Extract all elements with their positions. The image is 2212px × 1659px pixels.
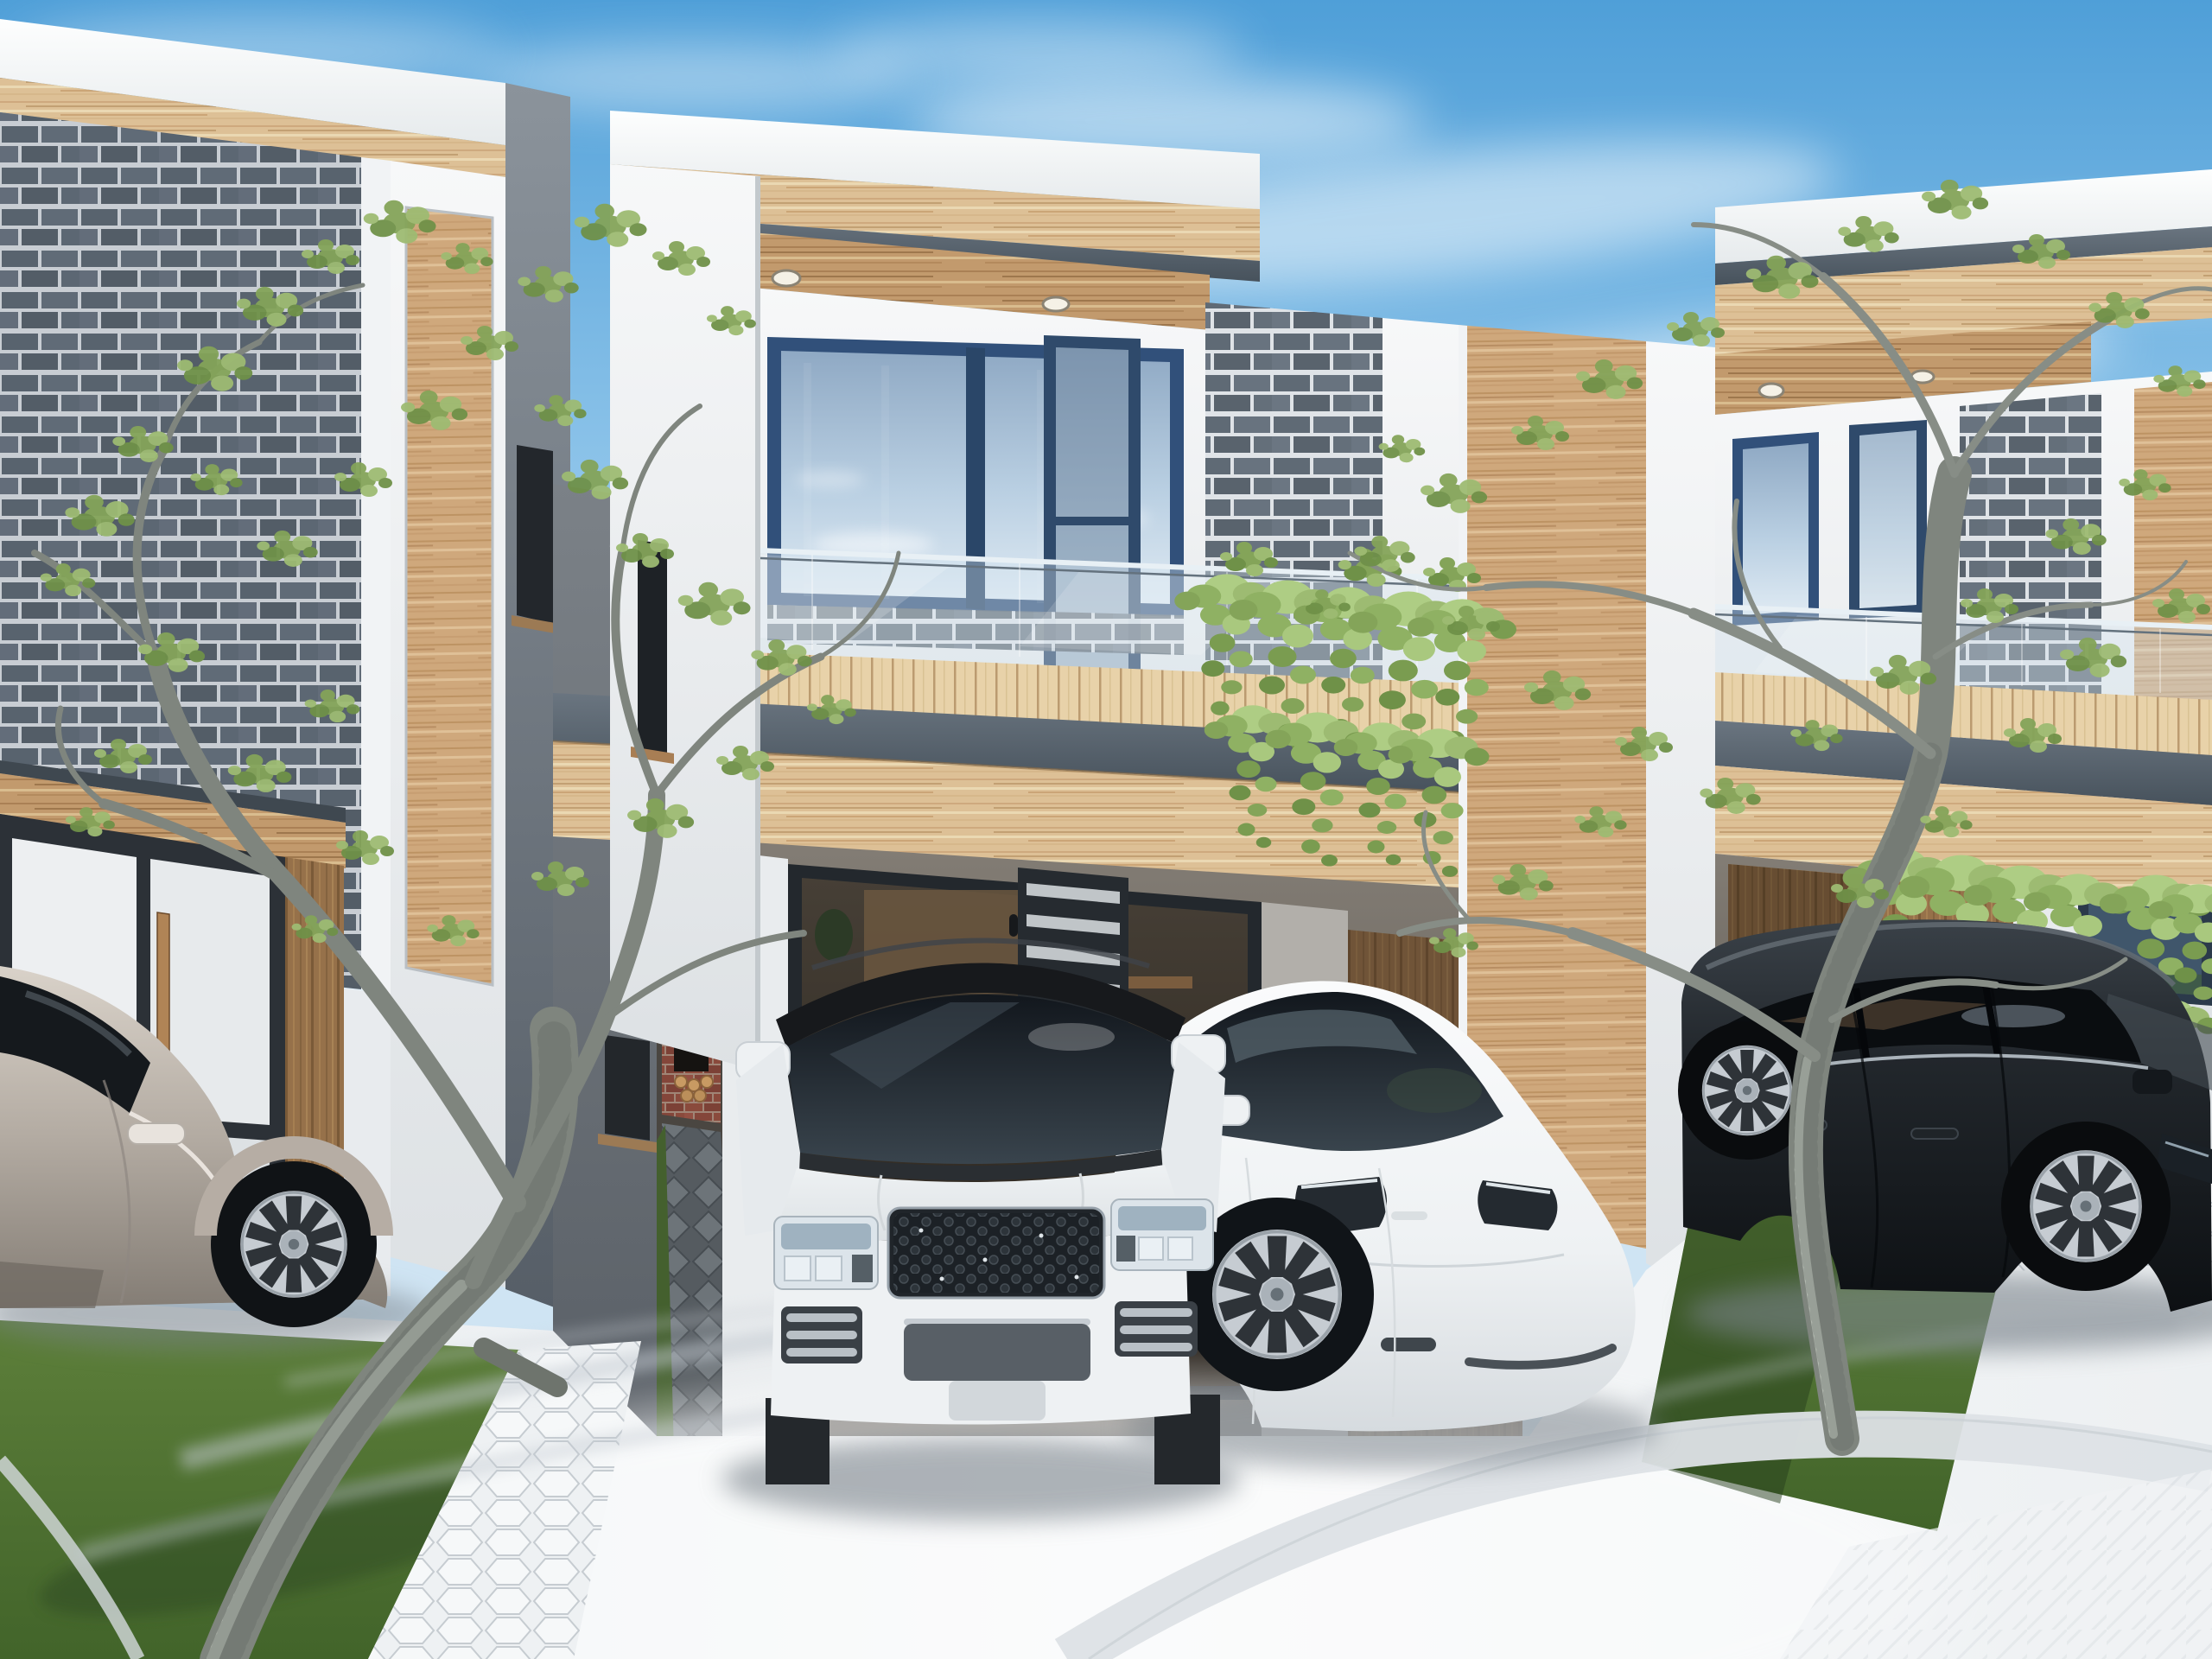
- suv-headlight-right: [1111, 1199, 1213, 1270]
- suv-headlight-left: [774, 1217, 878, 1289]
- suv-antenna: [1009, 914, 1018, 937]
- wing-window: [605, 1035, 650, 1141]
- downlight: [1043, 297, 1069, 311]
- pillar-slit-window: [638, 540, 667, 753]
- wagon-mirror: [2133, 1070, 2172, 1094]
- wagon-door-handle: [1911, 1128, 1958, 1139]
- left-house-wood-panel: [406, 207, 493, 985]
- silver-car-door-handle: [128, 1123, 185, 1144]
- right-window: [1732, 432, 1819, 626]
- suv-grille: [888, 1208, 1104, 1298]
- downlight: [1759, 384, 1783, 397]
- downlight: [772, 270, 800, 286]
- render-stage: [0, 0, 2212, 1659]
- side-window: [517, 445, 553, 624]
- architectural-render: [0, 0, 2212, 1659]
- right-corner-window: [1849, 420, 1927, 619]
